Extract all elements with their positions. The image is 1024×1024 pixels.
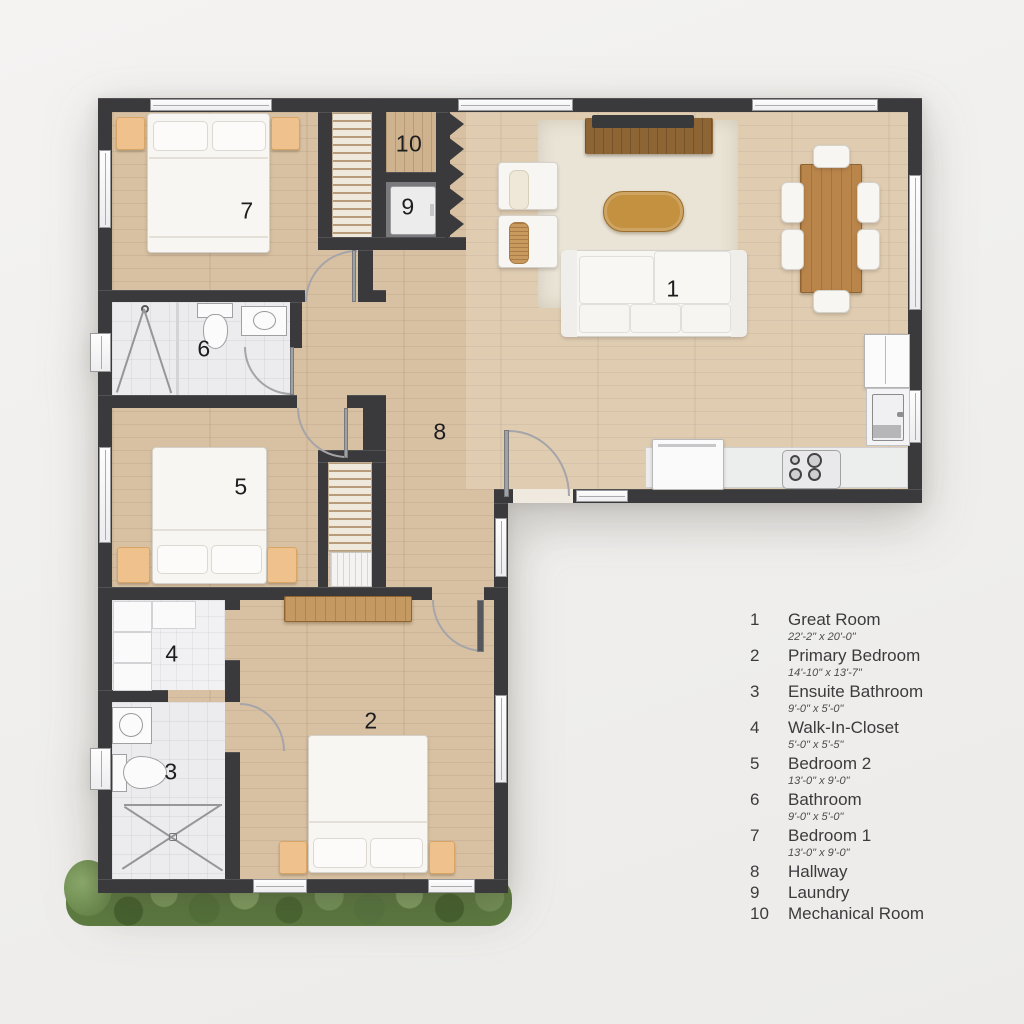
wall-segment: [225, 660, 240, 702]
legend-row-line: 4Walk-In-Closet: [750, 718, 1024, 738]
legend-row: 2Primary Bedroom 14'-10" x 13'-7": [750, 646, 1024, 680]
legend-dims: 22'-2" x 20'-0": [788, 631, 1024, 644]
sofa-armrest: [731, 250, 747, 337]
room-marker-hallway: 8: [433, 419, 446, 446]
wall-segment: [372, 462, 386, 587]
legend-name: Bathroom: [788, 790, 862, 810]
dining-chair: [857, 229, 880, 270]
door-leaf: [290, 347, 294, 395]
legend-row: 1Great Room 22'-2" x 20'-0": [750, 610, 1024, 644]
legend-dims: 9'-0" x 5'-0": [788, 703, 1024, 716]
legend-row-line: 9Laundry: [750, 883, 1024, 903]
zigzag-divider: [448, 112, 464, 137]
window: [253, 879, 307, 893]
fridge-door-split: [885, 336, 886, 384]
legend-name: Walk-In-Closet: [788, 718, 899, 738]
dining-chair: [781, 182, 804, 223]
legend-row: 9Laundry: [750, 883, 1024, 903]
floor-plan-canvas: 1 2 3 4 5 6 7 8 9 10 1Great Room 22'-2" …: [0, 0, 1024, 1024]
sofa-seat-cushion: [630, 304, 681, 333]
zigzag-divider: [448, 187, 464, 212]
window: [90, 748, 111, 790]
shelf: [113, 663, 152, 691]
zigzag-divider: [448, 162, 464, 187]
legend-dims: 13'-0" x 9'-0": [788, 775, 1024, 788]
wall-segment: [318, 112, 332, 240]
dresser: [330, 552, 372, 587]
legend-row-line: 3Ensuite Bathroom: [750, 682, 1024, 702]
wall-segment: [225, 587, 240, 610]
legend-dims: 9'-0" x 5'-0": [788, 811, 1024, 824]
dining-table: [800, 164, 862, 293]
nightstand: [116, 117, 145, 150]
nightstand: [117, 547, 150, 583]
wall-segment: [290, 302, 302, 348]
closet-hangers: [332, 112, 372, 238]
legend-row: 5Bedroom 2 13'-0" x 9'-0": [750, 754, 1024, 788]
wall-segment: [347, 395, 363, 408]
legend-name: Mechanical Room: [788, 904, 924, 924]
burner-icon: [808, 468, 821, 481]
wall-segment: [98, 290, 305, 302]
wall-segment: [372, 98, 386, 250]
shelf: [113, 632, 152, 663]
burner-icon: [789, 468, 802, 481]
window: [150, 99, 272, 111]
room-marker-bathroom: 6: [197, 336, 210, 363]
legend-number: 5: [750, 754, 788, 774]
pillow: [370, 838, 423, 868]
window: [99, 447, 111, 543]
dining-chair: [857, 182, 880, 223]
legend-row: 6Bathroom 9'-0" x 5'-0": [750, 790, 1024, 824]
legend-row: 10Mechanical Room: [750, 904, 1024, 924]
legend-row-line: 1Great Room: [750, 610, 1024, 630]
appliance-handle: [658, 444, 716, 447]
tv: [592, 115, 694, 128]
legend-number: 8: [750, 862, 788, 882]
wall-segment: [98, 395, 297, 408]
blanket-fold: [149, 236, 268, 238]
pillow: [157, 545, 208, 574]
legend-number: 1: [750, 610, 788, 630]
legend-row-line: 10Mechanical Room: [750, 904, 1024, 924]
coffee-table: [603, 191, 684, 232]
window: [495, 518, 507, 577]
wall-segment: [98, 690, 168, 702]
door-leaf: [344, 408, 348, 458]
blanket-fold: [149, 157, 268, 159]
legend-row: 8Hallway: [750, 862, 1024, 882]
legend-row-line: 8Hallway: [750, 862, 1024, 882]
washer-handle: [430, 204, 434, 216]
window: [458, 99, 573, 111]
legend: 1Great Room 22'-2" x 20'-0" 2Primary Bed…: [750, 610, 1024, 925]
sink-basin: [253, 311, 276, 330]
room-marker-primary-bedroom: 2: [364, 708, 377, 735]
dining-chair: [813, 145, 850, 168]
shower-drain-icon: [169, 833, 177, 841]
legend-name: Primary Bedroom: [788, 646, 920, 666]
blanket-fold: [309, 821, 427, 823]
window: [90, 333, 111, 372]
wall-segment: [358, 250, 373, 302]
sofa-back-cushion: [579, 256, 654, 304]
window: [752, 99, 878, 111]
sofa-armrest: [561, 250, 577, 337]
sofa-seat-cushion: [681, 304, 731, 333]
nightstand: [429, 841, 455, 874]
burner-icon: [807, 453, 822, 468]
entry-door-leaf: [504, 430, 509, 497]
sofa-seat-cushion: [579, 304, 630, 333]
room-marker-bedroom-2: 5: [234, 474, 247, 501]
wall-segment: [484, 587, 508, 600]
armchair-cushion: [509, 170, 529, 210]
pillow: [313, 838, 367, 868]
closet-hangers: [328, 462, 372, 552]
legend-row-line: 2Primary Bedroom: [750, 646, 1024, 666]
wall-segment: [225, 752, 240, 879]
legend-number: 9: [750, 883, 788, 903]
sink-basin: [119, 713, 143, 737]
legend-name: Great Room: [788, 610, 881, 630]
shelf: [152, 601, 196, 629]
door-leaf: [477, 600, 484, 652]
wall-segment: [386, 172, 436, 182]
legend-number: 6: [750, 790, 788, 810]
zigzag-divider: [448, 137, 464, 162]
nightstand: [279, 841, 307, 874]
faucet-icon: [897, 412, 904, 417]
legend-row: 4Walk-In-Closet 5'-0" x 5'-5": [750, 718, 1024, 752]
shelf: [113, 601, 152, 632]
pillow: [153, 121, 208, 151]
room-marker-great-room: 1: [666, 276, 679, 303]
room-marker-bedroom-1: 7: [240, 198, 253, 225]
legend-row: 7Bedroom 1 13'-0" x 9'-0": [750, 826, 1024, 860]
legend-row-line: 5Bedroom 2: [750, 754, 1024, 774]
wall-segment: [318, 237, 466, 250]
legend-number: 4: [750, 718, 788, 738]
room-marker-walk-in-closet: 4: [165, 641, 178, 668]
legend-number: 3: [750, 682, 788, 702]
legend-dims: 13'-0" x 9'-0": [788, 847, 1024, 860]
legend-name: Ensuite Bathroom: [788, 682, 923, 702]
door-leaf: [352, 250, 356, 302]
pillow: [211, 545, 262, 574]
room-marker-laundry: 9: [401, 194, 414, 221]
wood-log-accent: [509, 222, 529, 264]
wall-segment: [318, 462, 328, 587]
window: [576, 490, 628, 502]
legend-name: Hallway: [788, 862, 848, 882]
window: [428, 879, 475, 893]
legend-name: Bedroom 2: [788, 754, 871, 774]
zigzag-divider: [448, 212, 464, 237]
legend-name: Laundry: [788, 883, 849, 903]
legend-row-line: 6Bathroom: [750, 790, 1024, 810]
sink-basin: [873, 425, 901, 438]
shower-divider: [176, 302, 179, 395]
dining-chair: [813, 290, 850, 313]
legend-dims: 14'-10" x 13'-7": [788, 667, 1024, 680]
legend-name: Bedroom 1: [788, 826, 871, 846]
legend-dims: 5'-0" x 5'-5": [788, 739, 1024, 752]
legend-number: 7: [750, 826, 788, 846]
window: [909, 390, 921, 443]
bench: [284, 596, 412, 622]
nightstand: [267, 547, 297, 583]
dining-chair: [781, 229, 804, 270]
burner-icon: [790, 455, 800, 465]
legend-list: 1Great Room 22'-2" x 20'-0" 2Primary Bed…: [750, 610, 1024, 924]
pillow: [212, 121, 266, 151]
legend-number: 2: [750, 646, 788, 666]
blanket-fold: [153, 529, 266, 531]
window: [495, 695, 507, 783]
legend-row: 3Ensuite Bathroom 9'-0" x 5'-0": [750, 682, 1024, 716]
window: [909, 175, 921, 310]
room-marker-ensuite: 3: [164, 759, 177, 786]
legend-number: 10: [750, 904, 788, 924]
fridge: [864, 334, 910, 388]
window: [99, 150, 111, 228]
room-marker-mechanical: 10: [396, 131, 423, 158]
nightstand: [271, 117, 300, 150]
legend-row-line: 7Bedroom 1: [750, 826, 1024, 846]
